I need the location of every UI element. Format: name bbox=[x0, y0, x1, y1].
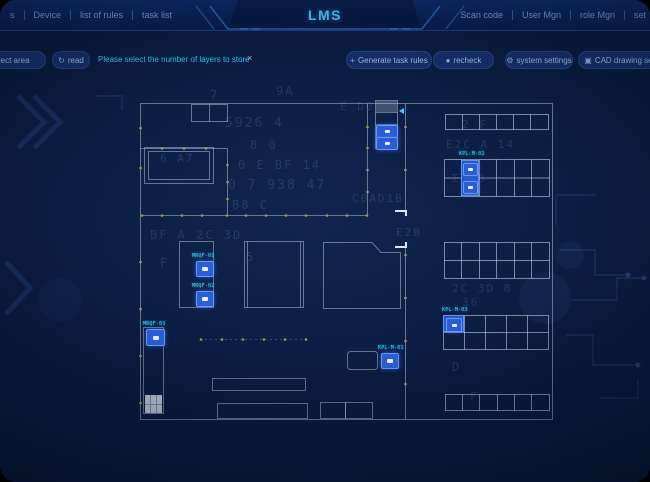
button-label: select area bbox=[0, 56, 30, 65]
marker-icon bbox=[387, 359, 393, 363]
refresh-icon: ↻ bbox=[58, 56, 65, 65]
button-label: system settings bbox=[517, 56, 572, 65]
map-marker[interactable] bbox=[463, 163, 478, 176]
marker-icon bbox=[468, 186, 473, 189]
map-marker[interactable] bbox=[376, 137, 398, 150]
map-marker[interactable] bbox=[146, 329, 165, 346]
nav-scan-code[interactable]: Scan code bbox=[460, 10, 503, 20]
marker-icon bbox=[202, 297, 208, 301]
pointer-arrow-icon bbox=[399, 108, 404, 114]
map-marker[interactable] bbox=[446, 318, 462, 332]
marker-icon bbox=[153, 336, 159, 340]
close-icon[interactable]: × bbox=[247, 53, 252, 63]
marker-icon bbox=[468, 168, 473, 171]
nav-list-of-rules[interactable]: list of rules bbox=[80, 10, 123, 20]
button-label: CAD drawing settings bbox=[595, 56, 650, 65]
system-settings-button[interactable]: ⚙ system settings bbox=[505, 51, 573, 69]
gear-icon: ⚙ bbox=[506, 56, 513, 65]
plan-overlays: KPL-M-02 KPL-M-03 MRQF-01 MRQF-02 MRQF-0… bbox=[0, 0, 650, 482]
nav-user-mgn[interactable]: User Mgn bbox=[522, 10, 561, 20]
marker-label: MRQF-01 bbox=[192, 253, 214, 259]
select-area-button[interactable]: select area bbox=[0, 51, 46, 69]
nav-device[interactable]: Device bbox=[34, 10, 62, 20]
read-button[interactable]: ↻ read bbox=[52, 51, 90, 69]
nav-settings[interactable]: set bbox=[634, 10, 646, 20]
app-window: 9A7E D05926 42 F8 0E2C A 146 A70 E BF 14… bbox=[0, 0, 650, 482]
separator bbox=[570, 10, 571, 20]
separator bbox=[624, 10, 625, 20]
separator bbox=[132, 10, 133, 20]
toolbar: select area ↻ read Please select the num… bbox=[0, 50, 650, 72]
app-title: LMS bbox=[308, 7, 342, 23]
marker-label: KPL-M-02 bbox=[459, 151, 485, 157]
topbar-right-nav: Scan code User Mgn role Mgn set bbox=[460, 0, 646, 30]
marker-label: KPL-M-03 bbox=[442, 307, 468, 313]
nav-role-mgn[interactable]: role Mgn bbox=[580, 10, 615, 20]
generate-task-rules-button[interactable]: + Generate task rules bbox=[346, 51, 432, 69]
dot-icon: ● bbox=[446, 56, 451, 65]
topbar-fragment: s bbox=[10, 10, 15, 20]
map-marker[interactable] bbox=[381, 353, 399, 369]
marker-icon bbox=[385, 130, 390, 133]
button-label: recheck bbox=[453, 56, 481, 65]
map-marker[interactable] bbox=[463, 181, 478, 194]
separator bbox=[24, 10, 25, 20]
plus-icon: + bbox=[350, 56, 355, 65]
toolbar-message: Please select the number of layers to st… bbox=[98, 55, 250, 64]
separator bbox=[512, 10, 513, 20]
topbar: s Device list of rules task list LMS Sca… bbox=[0, 0, 650, 31]
recheck-button[interactable]: ● recheck bbox=[433, 51, 494, 69]
separator bbox=[70, 10, 71, 20]
marker-icon bbox=[385, 142, 390, 145]
map-marker[interactable] bbox=[196, 291, 214, 307]
button-label: read bbox=[68, 56, 84, 65]
app-title-wrap: LMS bbox=[240, 0, 410, 30]
marker-icon bbox=[452, 324, 457, 327]
nav-task-list[interactable]: task list bbox=[142, 10, 172, 20]
marker-label: MRQF-02 bbox=[192, 283, 214, 289]
marker-icon bbox=[202, 267, 208, 271]
marker-label: KPL-M-01 bbox=[378, 345, 404, 351]
button-label: Generate task rules bbox=[358, 56, 428, 65]
grid-icon: ▣ bbox=[584, 56, 592, 65]
map-marker[interactable] bbox=[196, 261, 214, 277]
cad-drawing-settings-button[interactable]: ▣ CAD drawing settings bbox=[578, 51, 650, 69]
marker-label: MRQF-03 bbox=[143, 321, 165, 327]
topbar-left-nav: s Device list of rules task list bbox=[10, 0, 172, 30]
